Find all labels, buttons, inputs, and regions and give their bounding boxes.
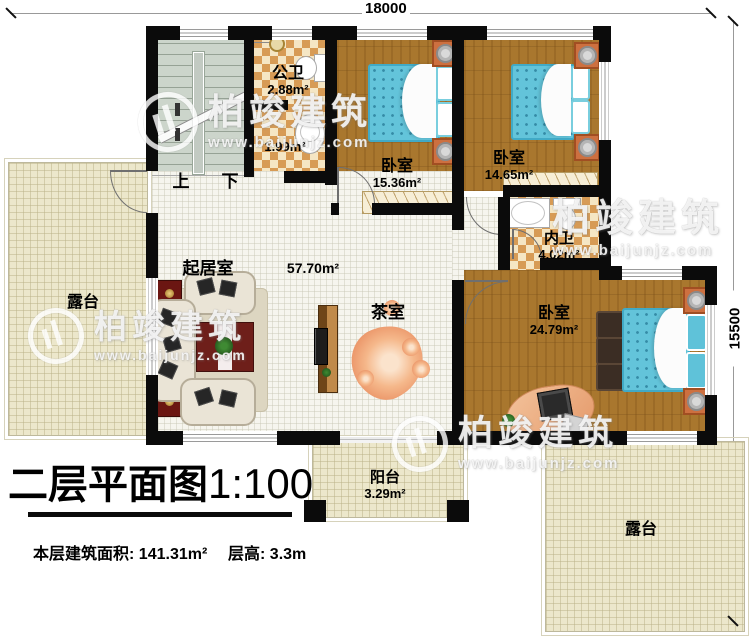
door-leaf <box>110 170 147 172</box>
lamp-icon <box>578 46 597 65</box>
top-dimension-line <box>10 13 712 14</box>
room-name: 卧室 <box>362 158 432 176</box>
floor-plan-canvas: 18000 15500 <box>0 0 750 643</box>
wall <box>452 26 464 230</box>
tea-room-pebble <box>412 360 430 378</box>
watermark-brand: 柏竣建筑 <box>208 94 372 130</box>
room-area: 24.79m² <box>519 323 589 337</box>
watermark-logo-icon <box>21 301 92 372</box>
wall <box>498 258 510 270</box>
lamp-icon <box>687 291 706 310</box>
wall <box>331 203 339 215</box>
window <box>705 305 717 395</box>
door-leaf <box>512 229 514 259</box>
floor-area-note: 本层建筑面积: 141.31m² <box>33 540 207 564</box>
label-tea-room: 茶室 <box>363 304 413 323</box>
wall <box>277 431 340 445</box>
balcony-pillar <box>447 500 469 522</box>
watermark-url: www.baijunjz.com <box>94 347 247 363</box>
watermark-brand: 柏竣建筑 <box>552 200 724 238</box>
label-balcony: 阳台 3.29m² <box>352 470 418 501</box>
wall <box>599 26 611 62</box>
bed-blanket <box>402 64 436 138</box>
sofa-pillow <box>219 389 238 407</box>
title-text: 二层平面图 <box>8 463 208 507</box>
label-bedroom2: 卧室 14.65m² <box>474 150 544 182</box>
floor-area-value: 141.31m² <box>139 546 208 563</box>
watermark-brand: 柏竣建筑 <box>94 310 247 343</box>
stairs-down-text: 下 <box>222 172 239 191</box>
label-living-room-area: 57.70m² <box>285 261 341 276</box>
room-name: 公卫 <box>255 65 321 83</box>
label-stairs-down: 下 <box>220 173 240 192</box>
watermark: 柏竣建筑 www.baijunjz.com <box>138 92 372 152</box>
room-name: 卧室 <box>474 150 544 168</box>
cabinet-emblem-icon <box>165 289 174 298</box>
top-dimension-label: 18000 <box>362 0 410 17</box>
room-name: 茶室 <box>371 303 405 322</box>
room-name: 露台 <box>625 521 657 538</box>
door-leaf <box>465 280 508 282</box>
console-plant <box>322 368 331 377</box>
title-scale: 1:100 <box>208 460 313 507</box>
watermark-url: www.baijunjz.com <box>458 455 619 472</box>
window <box>599 62 611 140</box>
lamp-icon <box>578 138 597 157</box>
wall <box>372 203 464 215</box>
room-name: 卧室 <box>519 305 589 323</box>
watermark-brand: 柏竣建筑 <box>458 416 619 451</box>
window <box>487 26 593 40</box>
logo-bar <box>414 428 427 454</box>
watermark: 柏竣建筑 www.baijunjz.com <box>28 308 247 364</box>
right-dimension-label: 15500 <box>727 291 744 367</box>
lamp-icon <box>687 392 706 411</box>
room-name: 阳台 <box>352 470 418 487</box>
watermark-logo-icon <box>130 84 206 160</box>
floor-height-value: 3.3m <box>270 546 306 563</box>
window <box>357 26 427 40</box>
tea-room-pebble <box>357 370 374 387</box>
bed-blanket <box>541 64 571 136</box>
room-area: 57.70m² <box>287 260 339 276</box>
drawing-title: 二层平面图1:100 <box>8 452 313 510</box>
window <box>622 266 682 280</box>
logo-bar <box>162 104 176 132</box>
floor-height-label: 层高: <box>228 546 265 563</box>
logo-bar <box>41 329 52 350</box>
wall <box>705 266 717 305</box>
window <box>272 26 312 40</box>
watermark-url: www.baijunjz.com <box>208 134 372 151</box>
room-area: 3.29m² <box>352 487 418 501</box>
window <box>183 431 277 445</box>
logo-bar <box>152 114 165 137</box>
nightstand <box>574 42 600 69</box>
wall <box>146 213 158 278</box>
window <box>180 26 228 40</box>
tv <box>314 328 328 365</box>
bed-pillow <box>571 100 590 134</box>
floor-area-label: 本层建筑面积: <box>33 546 134 563</box>
wall <box>146 431 183 445</box>
wall <box>503 185 611 197</box>
title-underline <box>28 512 292 517</box>
logo-bar <box>405 437 416 458</box>
wall <box>284 171 337 183</box>
nightstand <box>574 134 600 161</box>
logo-bar <box>50 320 63 346</box>
bed-pillow <box>686 314 707 351</box>
floor-height-note: 层高: 3.3m <box>228 540 306 564</box>
label-living-room: 起居室 <box>175 260 241 279</box>
watermark: 柏竣建筑 www.baijunjz.com <box>552 200 724 259</box>
room-area: 14.65m² <box>474 168 544 182</box>
window <box>627 431 697 445</box>
stairs-up-text: 上 <box>173 172 190 191</box>
label-terrace-right: 露台 <box>620 521 662 539</box>
label-master-bedroom: 卧室 24.79m² <box>519 305 589 337</box>
sofa-pillow <box>219 280 238 298</box>
ensuite-basin <box>511 201 545 225</box>
label-stairs-up: 上 <box>171 173 191 192</box>
watermark: 柏竣建筑 www.baijunjz.com <box>392 416 619 472</box>
room-name: 起居室 <box>183 259 234 278</box>
tea-room-pebble <box>402 338 420 356</box>
door-leaf <box>337 167 339 204</box>
bed-pillow <box>686 352 707 389</box>
room-area: 15.36m² <box>362 176 432 190</box>
wall <box>705 395 717 445</box>
label-bedroom1: 卧室 15.36m² <box>362 158 432 190</box>
watermark-url: www.baijunjz.com <box>552 242 724 259</box>
bed-blanket <box>654 308 686 388</box>
bed-pillow <box>571 66 590 100</box>
watermark-logo-icon <box>385 409 456 480</box>
